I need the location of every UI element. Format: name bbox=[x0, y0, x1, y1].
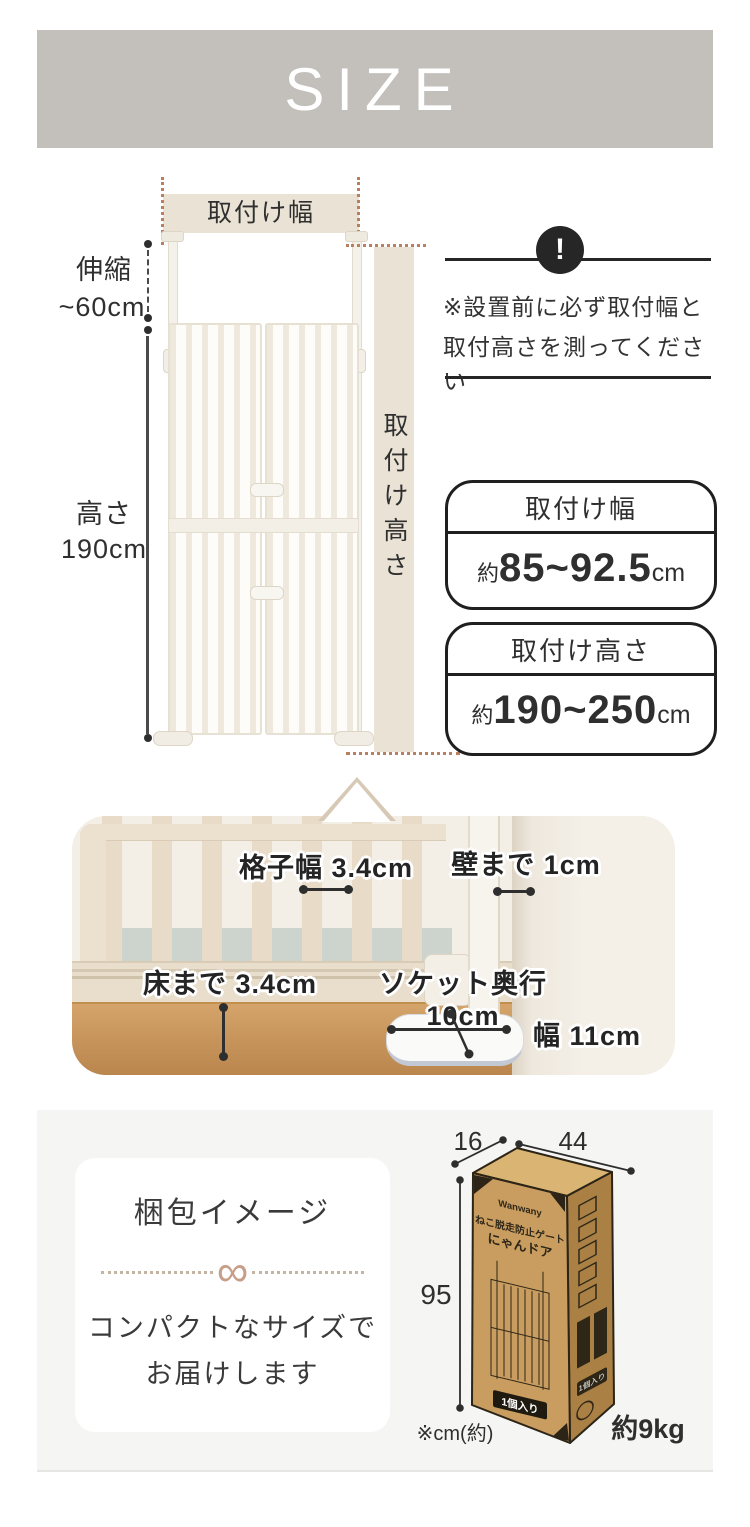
measure-wall-gap bbox=[496, 890, 532, 893]
photo-gate-top-rail bbox=[80, 824, 446, 841]
packaging-box-illustration: Wanwany ねこ脱走防止ゲート にゃんドア 1個入り bbox=[400, 1120, 710, 1460]
packaging-desc-line2: お届けします bbox=[75, 1352, 390, 1391]
packaging-card: 梱包イメージ ∞ コンパクトなサイズで お届けします bbox=[75, 1158, 390, 1432]
box-width-label: 44 bbox=[559, 1126, 588, 1156]
spec-mount-height-approx: 約 bbox=[471, 698, 493, 730]
box-caution-badge-2 bbox=[594, 1307, 607, 1360]
gate-right-pole-cap bbox=[345, 231, 368, 242]
height-label: 高さ bbox=[62, 492, 146, 531]
size-header: SIZE bbox=[37, 30, 713, 148]
extension-value: ~60cm bbox=[44, 292, 160, 323]
spec-box-mount-width: 取付け幅 約 85~92.5 cm bbox=[445, 480, 717, 610]
annotation-lattice-width: 格子幅 3.4cm bbox=[228, 846, 424, 885]
notice-line1: ※設置前に必ず取付幅と bbox=[443, 288, 723, 322]
gate-left-foot bbox=[153, 731, 193, 746]
spec-box-mount-height: 取付け高さ 約 190~250 cm bbox=[445, 622, 717, 756]
spec-mount-width-unit: cm bbox=[652, 559, 685, 588]
photo-gate-left-post bbox=[80, 824, 106, 964]
mount-height-band: 取付け高さ bbox=[374, 247, 414, 752]
box-weight-label: 約9kg bbox=[611, 1413, 685, 1444]
product-size-page: SIZE 取付け幅 伸縮 ~60cm 高さ 190cm 取付け高さ ! ※設置前… bbox=[0, 0, 750, 1527]
spec-mount-height-value: 190~250 bbox=[493, 688, 657, 733]
annotation-floor-gap: 床まで 3.4cm bbox=[138, 962, 322, 1001]
annotation-socket-width: 幅 11cm bbox=[523, 1014, 651, 1053]
spec-mount-width-value: 85~92.5 bbox=[499, 546, 652, 591]
spec-mount-width-title: 取付け幅 bbox=[448, 483, 714, 534]
measure-socket-width bbox=[390, 1028, 508, 1031]
height-measure-top-dot bbox=[144, 326, 152, 334]
extension-measure-top-dot bbox=[144, 240, 152, 248]
notice-line2: 取付高さを測ってください bbox=[443, 328, 723, 396]
divider-dots-right bbox=[252, 1271, 364, 1274]
infinity-icon: ∞ bbox=[217, 1262, 248, 1282]
extension-label: 伸縮 bbox=[62, 248, 146, 287]
box-depth-label: 16 bbox=[454, 1126, 483, 1156]
mount-width-band: 取付け幅 bbox=[163, 194, 359, 233]
gate-left-pole-cap bbox=[161, 231, 184, 242]
box-unit-note: ※cm(約) bbox=[417, 1422, 494, 1445]
height-value: 190cm bbox=[44, 534, 164, 565]
mount-height-band-label: 取付け高さ bbox=[376, 412, 412, 587]
box-caution-badge-1 bbox=[577, 1316, 590, 1369]
spec-mount-height-title: 取付け高さ bbox=[448, 625, 714, 676]
packaging-divider: ∞ bbox=[101, 1262, 364, 1282]
alert-icon: ! bbox=[536, 226, 584, 274]
measure-lattice-width bbox=[302, 888, 350, 891]
spec-mount-width-approx: 約 bbox=[477, 556, 499, 588]
packaging-desc-line1: コンパクトなサイズで bbox=[75, 1306, 390, 1345]
box-height-label: 95 bbox=[420, 1279, 451, 1310]
gate-mid-rail bbox=[168, 518, 359, 533]
measure-floor-gap bbox=[222, 1006, 225, 1058]
gate-upper-latch bbox=[250, 483, 284, 497]
mount-height-dotted-bottom bbox=[346, 752, 460, 755]
gate-lower-latch bbox=[250, 586, 284, 600]
notice-bottom-rule bbox=[445, 376, 711, 379]
height-measure-bottom-dot bbox=[144, 734, 152, 742]
divider-dots-left bbox=[101, 1271, 213, 1274]
spec-mount-height-unit: cm bbox=[657, 701, 690, 730]
packaging-title: 梱包イメージ bbox=[75, 1188, 390, 1232]
gate-right-foot bbox=[334, 731, 374, 746]
size-title: SIZE bbox=[284, 55, 465, 124]
annotation-wall-gap: 壁まで 1cm bbox=[438, 843, 614, 882]
photo-pointer bbox=[323, 782, 391, 822]
measure-socket-depth bbox=[440, 1002, 484, 1060]
